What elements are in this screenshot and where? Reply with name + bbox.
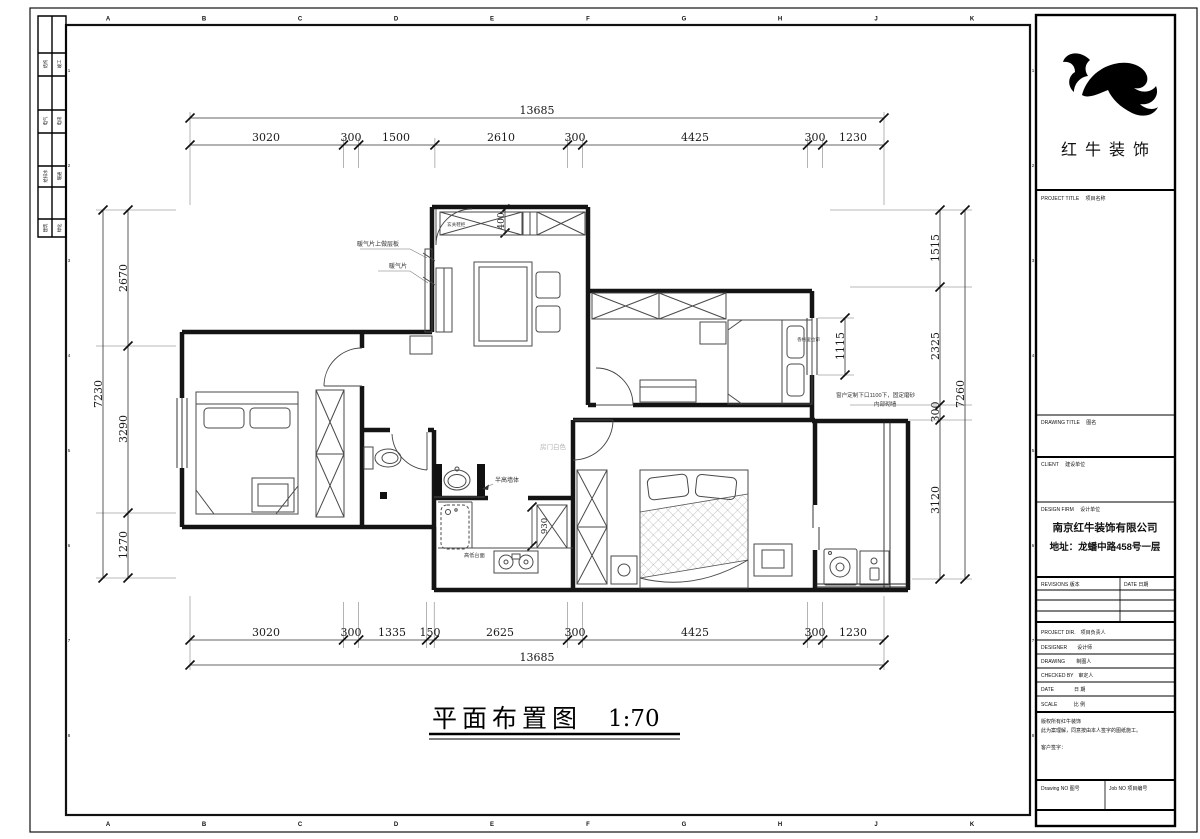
dim-label: 4425 (681, 131, 709, 144)
dim-label: 300 (805, 626, 826, 639)
frame-number: 2 (68, 163, 71, 168)
strip-label: 给排水 (42, 169, 49, 183)
scale-label: SCALE 比 例 (1041, 701, 1085, 708)
dim-top-total: 13685 (520, 104, 555, 117)
furniture-balcony (824, 549, 889, 585)
dim-label: 300 (341, 131, 362, 144)
bedroom3-door-arc (573, 420, 613, 460)
ruler-letter: E (490, 822, 494, 828)
ruler-letter: D (394, 822, 399, 828)
dim-label: 1270 (117, 531, 130, 559)
ruler-letter: F (586, 17, 590, 23)
strip-label: 绿化 (56, 223, 63, 232)
furniture-bedroom2 (592, 293, 812, 404)
dim-label: 1515 (929, 234, 942, 262)
furniture-bedroom3 (577, 470, 792, 588)
ruler-letter: J (874, 822, 877, 828)
ruler-letter: B (202, 822, 207, 828)
dim-label: 13685 (520, 104, 555, 117)
dim-window: 1115 (834, 332, 847, 360)
dim-label: 13685 (520, 651, 555, 664)
dim-right-total: 7260 (954, 380, 967, 408)
blind-note: 香格里拉帘 (797, 336, 820, 343)
dim-label: 300 (929, 402, 942, 423)
date-col-label: DATE 日期 (1124, 582, 1148, 588)
drawing-title: 平面布置图 1:70 (429, 704, 680, 739)
ruler-letter: G (682, 822, 687, 828)
ruler-letter: H (778, 822, 782, 828)
furniture-master (196, 390, 344, 517)
frame-number: 3 (1032, 258, 1035, 263)
dim-label: 1335 (378, 626, 406, 639)
dim-bottom-total: 13685 (520, 651, 555, 664)
frame-number: 6 (68, 543, 71, 548)
ruler-letter: A (106, 17, 111, 23)
dim-label: 300 (565, 131, 586, 144)
strip-label: 电气 (42, 116, 48, 125)
cad-sheet-svg: 结构 电气 给排水 建筑 竣工 电讯 暖通 绿化 A B C D E F G H… (0, 0, 1200, 839)
dim-label: 3120 (929, 486, 942, 514)
windows (177, 318, 908, 590)
checked-by-label: CHECKED BY 审定人 (1041, 672, 1093, 679)
radiator-note: 暖气片 (389, 262, 407, 270)
frame-number: 1 (1032, 68, 1035, 73)
dim-label: 2610 (487, 131, 515, 144)
ruler-letter: G (682, 17, 687, 23)
ruler-letter: K (970, 822, 975, 828)
design-firm-label: DESIGN FIRM 设计单位 (1041, 506, 1100, 513)
frame-number: 5 (68, 448, 71, 453)
dim-label: 1230 (839, 131, 867, 144)
job-no-label: Job NO 项目编号 (1109, 785, 1147, 792)
strip-label: 建筑 (42, 223, 49, 232)
dim-label: 300 (565, 626, 586, 639)
dim-label: 1230 (839, 626, 867, 639)
furniture-kitchen (438, 502, 573, 573)
plan-scale-text: 1:70 (608, 706, 660, 732)
drawing-sheet: 结构 电气 给排水 建筑 竣工 电讯 暖通 绿化 A B C D E F G H… (0, 0, 1200, 839)
dim-label: 1500 (382, 131, 410, 144)
counter-note: 高低台面 (464, 551, 485, 559)
window-note-1: 窗户定制下口1100下，固定磨砂 (836, 391, 916, 399)
dim-label: 3020 (252, 131, 280, 144)
date-label: DATE 日 期 (1041, 687, 1085, 693)
half-wall-note: 半高墙体 (495, 476, 519, 484)
frame-number: 7 (68, 638, 71, 643)
floor-drain (380, 492, 387, 499)
strip-labels-col1: 结构 电气 给排水 建筑 (42, 59, 49, 232)
ruler-letters-bottom: A B C D E F G H J K (106, 822, 975, 828)
dim-label: 2625 (486, 626, 514, 639)
dim-label: 300 (805, 131, 826, 144)
frame-number: 8 (1032, 733, 1035, 738)
half-wall-right (477, 464, 485, 498)
copyright-line1: 版权所有红牛装饰 (1041, 718, 1081, 725)
entry-cabinet-note: 玄关鞋柜 (447, 221, 466, 228)
ruler-letters-top: A B C D E F G H J K (106, 17, 975, 23)
frame-number: 5 (1032, 448, 1035, 453)
company-address: 地址：龙蟠中路458号一层 (1050, 541, 1161, 553)
ruler-letter: J (874, 17, 877, 23)
title-block: 红牛装饰 PROJECT TITLE 项目名称 DRAWING TITLE 图名… (1036, 15, 1175, 826)
project-dir-label: PROJECT DIR. 项目负责人 (1041, 629, 1106, 636)
frame-number: 4 (68, 353, 71, 358)
brand-logo (1063, 53, 1158, 115)
half-wall-left (434, 464, 442, 498)
ruler-letter: K (970, 17, 975, 23)
dim-label: 4425 (681, 626, 709, 639)
frame-number: 1 (68, 68, 71, 73)
brand-name: 红牛装饰 (1061, 140, 1157, 159)
dim-top-segments: 3020 300 1500 2610 300 4425 300 1230 (252, 131, 867, 144)
ruler-letter: B (202, 17, 207, 23)
frame-number: 8 (68, 733, 71, 738)
plan-title-text: 平面布置图 (432, 704, 582, 733)
ruler-letter: D (394, 17, 399, 23)
entry-door-arc (436, 209, 472, 245)
plan-annotations: 暖气片上做层板 暖气片 玄关鞋柜 窗户定制下口1100下，固定磨砂 内部砌墙 香… (357, 221, 916, 559)
ruler-letter: C (298, 822, 303, 828)
bedroom2-door-arc (596, 368, 633, 405)
extension-lines (96, 112, 972, 670)
drawing-no-label: Drawing NO 图号 (1041, 786, 1080, 792)
strip-label: 结构 (42, 59, 49, 68)
ruler-letter: E (490, 17, 494, 23)
strip-label: 暖通 (56, 171, 63, 180)
dim-bottom-segments: 3020 300 1335 150 2625 300 4425 300 1230 (252, 626, 867, 639)
drawing-title-label: DRAWING TITLE 图名 (1041, 419, 1096, 426)
frame-number: 2 (1032, 163, 1035, 168)
dim-label: 2670 (117, 264, 130, 292)
ruler-letter: C (298, 17, 303, 23)
door-color-note: 房门白色 (540, 442, 567, 451)
ruler-letter: F (586, 822, 590, 828)
designer-label: DESIGNER 设计师 (1041, 644, 1092, 651)
customer-sign-label: 客户签字： (1041, 744, 1066, 751)
strip-labels-col2: 竣工 电讯 暖通 绿化 (56, 59, 63, 232)
project-title-label: PROJECT TITLE 项目名称 (1041, 195, 1106, 202)
frame-numbers-right: 1 2 3 4 5 6 7 8 (1032, 68, 1035, 738)
dim-label: 2325 (929, 332, 942, 360)
window-note-2: 内部砌墙 (874, 400, 897, 408)
frame-number: 4 (1032, 353, 1035, 358)
furniture-bathroom (364, 447, 485, 499)
dim-left-total: 7230 (92, 380, 105, 408)
frame-number: 6 (1032, 543, 1035, 548)
company-name: 南京红牛装饰有限公司 (1053, 521, 1158, 534)
revisions-label: REVISIONS 版本 (1041, 581, 1080, 588)
frame-number: 3 (68, 258, 71, 263)
strip-label: 竣工 (56, 59, 63, 68)
dim-label: 300 (341, 626, 362, 639)
copyright-line2: 此为案理解，同意按由本人签字的图纸施工。 (1041, 727, 1141, 734)
dim-cabinet: 400 (497, 212, 507, 229)
strip-label: 电讯 (56, 116, 63, 125)
dim-label: 3020 (252, 626, 280, 639)
frame-number: 7 (1032, 638, 1035, 643)
frame-numbers-left: 1 2 3 4 5 6 7 8 (68, 68, 71, 738)
client-label: CLIENT 建设单位 (1041, 461, 1085, 468)
dim-label: 3290 (117, 415, 130, 443)
drawing-person-label: DRAWING 制图人 (1041, 658, 1091, 665)
ruler-letter: H (778, 17, 782, 23)
ruler-letter: A (106, 822, 111, 828)
quilt (640, 494, 748, 578)
discipline-strip: 结构 电气 给排水 建筑 竣工 电讯 暖通 绿化 (38, 16, 66, 237)
radiator-shelf-note: 暖气片上做层板 (357, 240, 399, 248)
master-door-arc (324, 348, 362, 386)
dim-label: 150 (420, 626, 441, 639)
